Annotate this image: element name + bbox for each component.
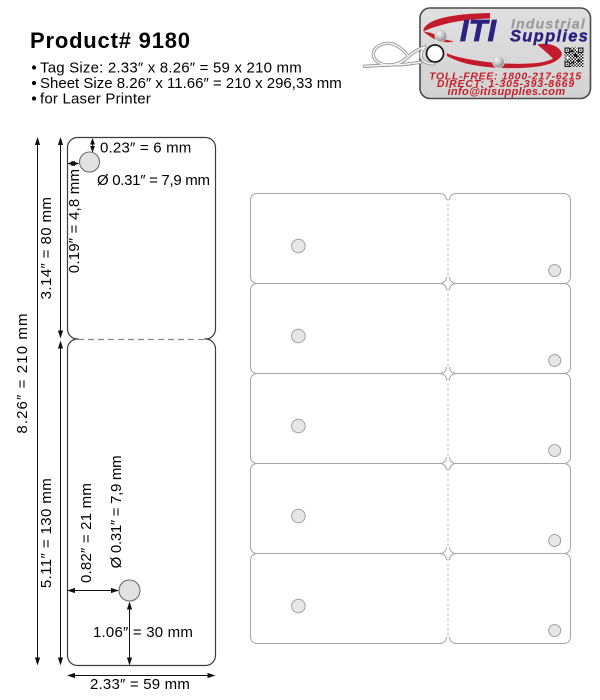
- svg-text:2.33″ = 59 mm: 2.33″ = 59 mm: [90, 676, 190, 693]
- svg-text:Product# 9180: Product# 9180: [30, 28, 191, 53]
- svg-text:info@itisupplies.com: info@itisupplies.com: [448, 86, 566, 98]
- svg-text:Ø 0.31″ = 7,9 mm: Ø 0.31″ = 7,9 mm: [108, 456, 125, 569]
- svg-text:ITI: ITI: [460, 13, 498, 48]
- svg-text:Sheet Size 8.26″ x 11.66″ = 21: Sheet Size 8.26″ x 11.66″ = 210 x 296,33…: [40, 75, 342, 92]
- svg-text:for Laser Printer: for Laser Printer: [40, 91, 151, 108]
- svg-text:8.26″ = 210 mm: 8.26″ = 210 mm: [14, 312, 31, 433]
- svg-text:Ø 0.31″ = 7,9 mm: Ø 0.31″ = 7,9 mm: [97, 172, 210, 189]
- svg-text:Supplies: Supplies: [510, 28, 589, 46]
- svg-text:1.06″ = 30 mm: 1.06″ = 30 mm: [93, 624, 193, 641]
- svg-text:3.14″ = 80 mm: 3.14″ = 80 mm: [38, 197, 55, 300]
- svg-text:0.19″ = 4,8 mm: 0.19″ = 4,8 mm: [66, 169, 83, 273]
- svg-text:0.23″ = 6 mm: 0.23″ = 6 mm: [100, 140, 192, 157]
- svg-text:Tag Size: 2.33″ x 8.26″ = 59 x: Tag Size: 2.33″ x 8.26″ = 59 x 210 mm: [40, 60, 302, 77]
- svg-text:0.82″ = 21 mm: 0.82″ = 21 mm: [78, 483, 95, 583]
- svg-text:5.11″ = 130 mm: 5.11″ = 130 mm: [38, 478, 55, 588]
